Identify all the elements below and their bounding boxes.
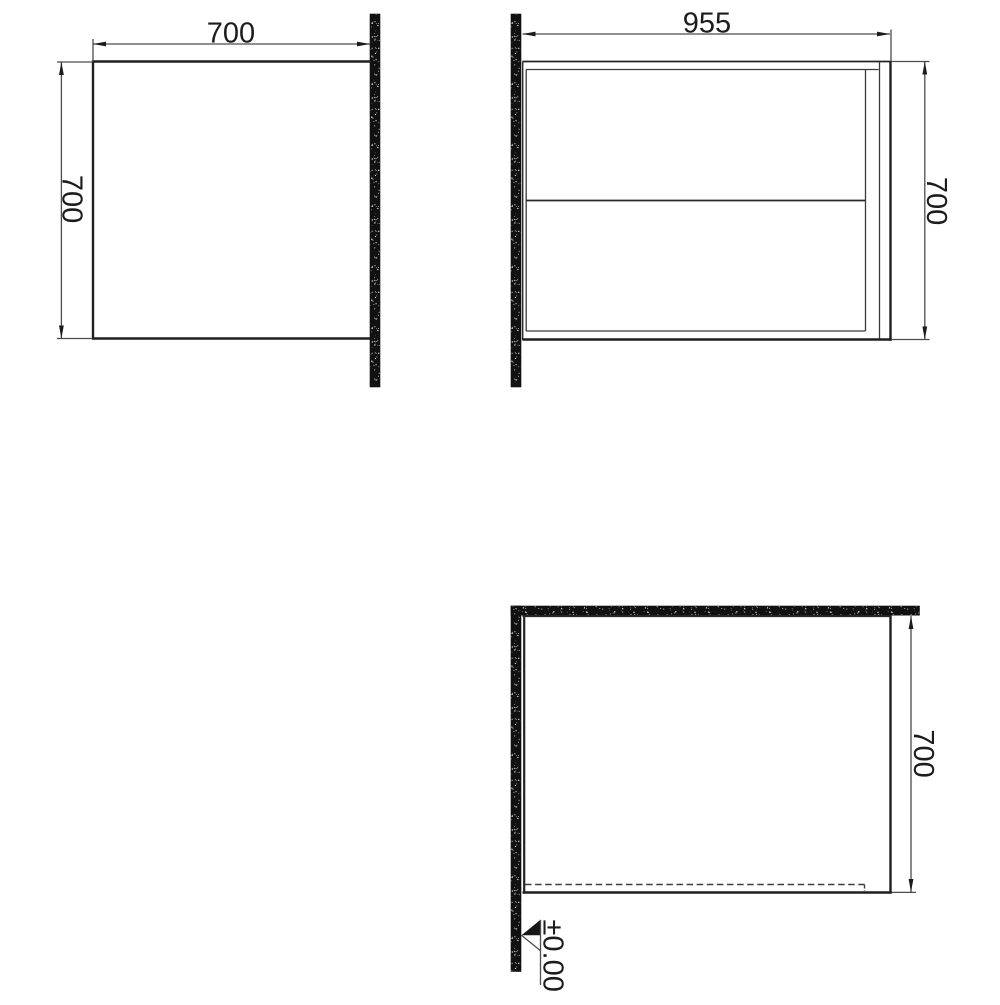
svg-text:700: 700 xyxy=(56,175,88,223)
svg-text:955: 955 xyxy=(683,8,731,40)
svg-text:700: 700 xyxy=(920,177,952,225)
svg-text:700: 700 xyxy=(207,18,255,50)
svg-text:±0.00: ±0.00 xyxy=(537,920,569,992)
svg-text:700: 700 xyxy=(907,729,939,777)
